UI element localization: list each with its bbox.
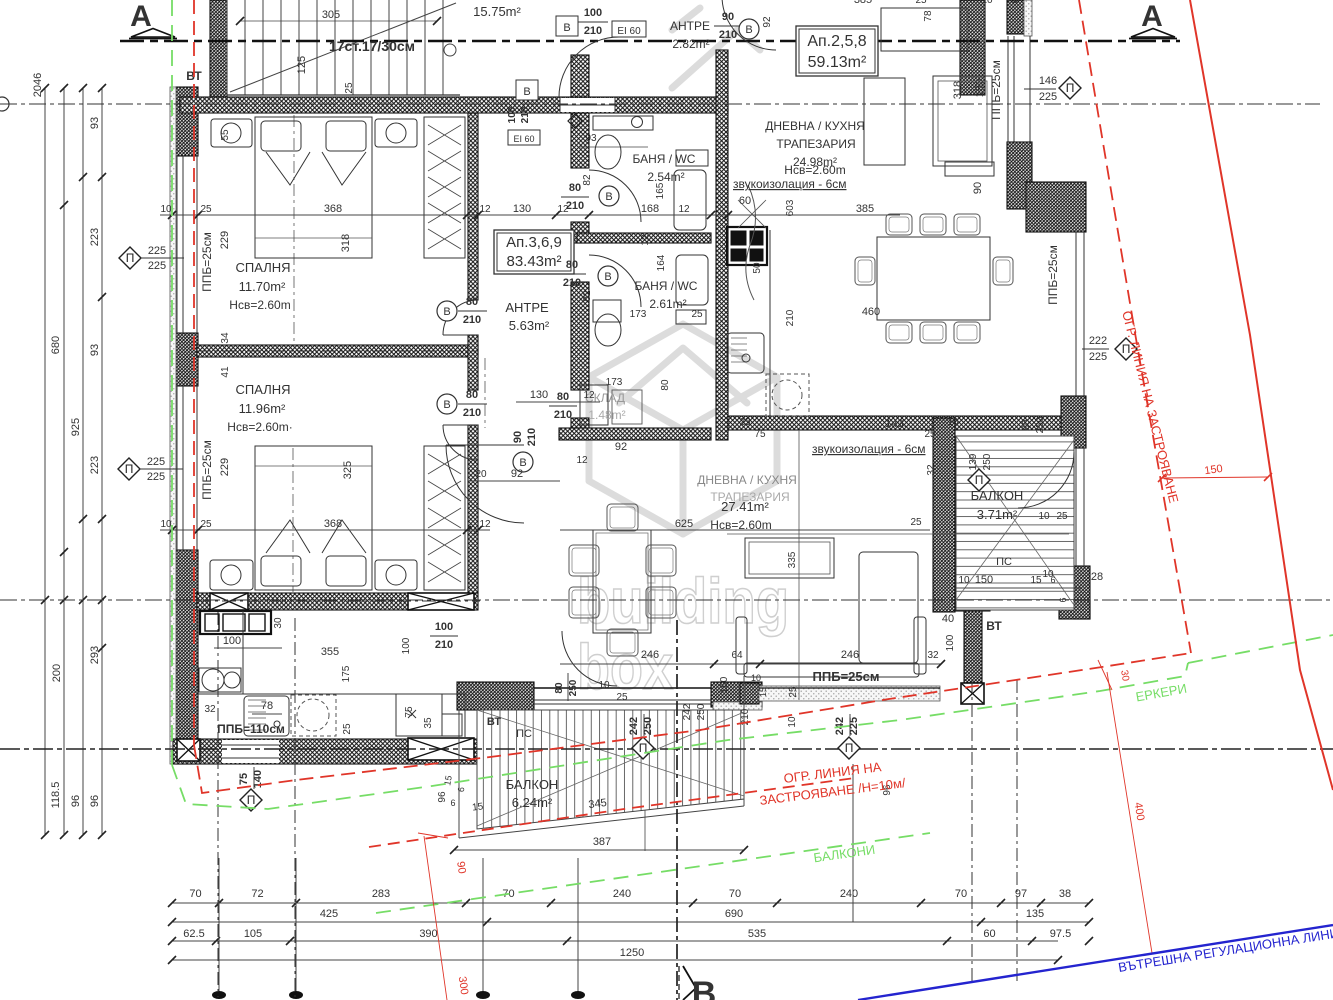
- svg-text:80: 80: [660, 379, 671, 391]
- svg-text:146: 146: [1039, 75, 1057, 87]
- svg-text:80: 80: [557, 391, 569, 403]
- svg-text:70: 70: [729, 888, 741, 900]
- svg-text:100: 100: [435, 621, 453, 633]
- svg-text:В: В: [692, 975, 717, 1000]
- svg-text:210: 210: [584, 25, 602, 37]
- svg-text:25: 25: [200, 204, 212, 215]
- svg-text:ППБ=25см: ППБ=25см: [1046, 245, 1060, 305]
- svg-text:10: 10: [1038, 511, 1050, 522]
- svg-text:210: 210: [719, 29, 737, 41]
- svg-text:130: 130: [513, 203, 531, 215]
- svg-text:100: 100: [401, 637, 412, 654]
- svg-text:12: 12: [479, 204, 491, 215]
- svg-text:10: 10: [958, 575, 970, 586]
- svg-text:В: В: [443, 399, 450, 411]
- svg-text:ТРАПЕЗАРИЯ: ТРАПЕЗАРИЯ: [776, 137, 855, 151]
- svg-text:П: П: [975, 473, 984, 487]
- svg-text:звукоизолация - 6см: звукоизолация - 6см: [733, 177, 847, 191]
- svg-text:СПАЛНЯ: СПАЛНЯ: [236, 382, 291, 397]
- svg-text:242: 242: [682, 703, 693, 720]
- svg-text:240: 240: [613, 888, 631, 900]
- svg-text:25: 25: [739, 417, 751, 428]
- svg-text:12: 12: [576, 455, 588, 466]
- svg-text:925: 925: [70, 418, 82, 436]
- svg-text:1250: 1250: [620, 947, 644, 959]
- svg-text:ДНЕВНА / КУХНЯ: ДНЕВНА / КУХНЯ: [697, 473, 797, 487]
- svg-text:96: 96: [437, 791, 448, 803]
- svg-text:В: В: [745, 24, 752, 36]
- svg-text:335: 335: [787, 551, 798, 568]
- svg-text:305: 305: [322, 9, 340, 21]
- svg-text:25: 25: [924, 429, 936, 440]
- svg-text:25: 25: [344, 82, 355, 94]
- svg-text:25: 25: [200, 519, 212, 530]
- svg-text:СПАЛНЯ: СПАЛНЯ: [236, 260, 291, 275]
- svg-text:25: 25: [788, 686, 799, 698]
- svg-text:143.: 143.: [885, 418, 906, 430]
- svg-text:17ст.17/30см: 17ст.17/30см: [329, 38, 415, 54]
- svg-text:83.43m²: 83.43m²: [506, 253, 561, 270]
- svg-text:100: 100: [223, 635, 241, 647]
- svg-text:АНТРЕ: АНТРЕ: [670, 19, 710, 33]
- svg-text:150: 150: [1204, 463, 1224, 477]
- svg-text:229: 229: [219, 458, 231, 476]
- svg-text:210: 210: [554, 409, 572, 421]
- svg-text:ПС: ПС: [516, 728, 532, 740]
- svg-text:П: П: [125, 462, 134, 476]
- svg-text:ПС: ПС: [996, 556, 1012, 568]
- svg-text:15: 15: [758, 687, 768, 697]
- svg-text:150: 150: [719, 676, 730, 693]
- svg-text:325: 325: [342, 461, 354, 479]
- svg-text:318: 318: [952, 81, 964, 99]
- svg-text:78: 78: [261, 700, 273, 712]
- svg-text:40: 40: [942, 613, 954, 625]
- svg-text:10: 10: [947, 417, 959, 428]
- svg-text:60: 60: [739, 195, 751, 207]
- svg-text:12: 12: [678, 204, 690, 215]
- svg-text:135: 135: [1026, 908, 1044, 920]
- svg-text:125: 125: [296, 56, 308, 74]
- svg-text:звукоизолация - 6см: звукоизолация - 6см: [812, 442, 926, 456]
- svg-text:96: 96: [70, 795, 82, 807]
- svg-text:100: 100: [507, 106, 518, 123]
- svg-text:27.41m²: 27.41m²: [721, 499, 769, 514]
- svg-text:222: 222: [1089, 335, 1107, 347]
- svg-text:В: В: [563, 22, 570, 34]
- svg-text:12: 12: [640, 234, 651, 246]
- svg-text:25: 25: [910, 517, 922, 528]
- svg-text:12: 12: [479, 519, 491, 530]
- svg-text:78: 78: [923, 10, 934, 22]
- svg-text:240: 240: [840, 888, 858, 900]
- svg-text:293: 293: [89, 646, 101, 664]
- svg-text:93: 93: [89, 344, 101, 356]
- svg-text:173: 173: [630, 309, 647, 320]
- svg-text:242: 242: [628, 717, 640, 735]
- svg-text:210: 210: [463, 407, 481, 419]
- svg-text:В: В: [605, 191, 612, 203]
- svg-text:30: 30: [1118, 669, 1131, 682]
- svg-text:300: 300: [456, 976, 470, 996]
- svg-text:625: 625: [675, 518, 693, 530]
- svg-text:92: 92: [762, 16, 773, 28]
- svg-text:387: 387: [593, 836, 611, 848]
- svg-text:28: 28: [1091, 571, 1103, 583]
- svg-text:ППБ=25см: ППБ=25см: [989, 60, 1003, 120]
- svg-text:10: 10: [598, 680, 610, 691]
- svg-text:75: 75: [1006, 0, 1018, 6]
- svg-text:6.24m²: 6.24m²: [512, 795, 553, 810]
- svg-text:А: А: [1141, 0, 1163, 33]
- svg-text:75: 75: [754, 429, 766, 440]
- svg-text:246: 246: [641, 649, 659, 661]
- svg-text:105: 105: [244, 928, 262, 940]
- svg-text:385: 385: [856, 203, 874, 215]
- svg-text:П: П: [845, 741, 854, 755]
- svg-text:210: 210: [566, 200, 584, 212]
- svg-text:15: 15: [472, 801, 485, 813]
- svg-text:30: 30: [273, 617, 284, 629]
- svg-text:5.63m²: 5.63m²: [509, 318, 550, 333]
- svg-text:10: 10: [787, 716, 798, 728]
- svg-text:20: 20: [475, 469, 487, 480]
- svg-text:Нсв=2.60m: Нсв=2.60m: [229, 298, 290, 312]
- svg-text:368: 368: [324, 203, 342, 215]
- svg-text:225: 225: [148, 260, 166, 272]
- svg-text:225: 225: [148, 245, 166, 257]
- svg-text:В: В: [604, 271, 611, 283]
- svg-text:БАЛКОН: БАЛКОН: [506, 777, 559, 792]
- svg-text:93: 93: [89, 117, 101, 129]
- svg-text:2.82m²: 2.82m²: [672, 37, 709, 51]
- svg-text:229: 229: [219, 231, 231, 249]
- svg-text:41: 41: [220, 366, 231, 378]
- svg-text:210: 210: [435, 639, 453, 651]
- svg-text:150: 150: [975, 574, 993, 586]
- svg-text:38: 38: [1059, 888, 1071, 900]
- svg-text:EI 60: EI 60: [513, 134, 534, 144]
- svg-text:Ап.2,5,8: Ап.2,5,8: [807, 33, 866, 50]
- svg-text:В: В: [443, 306, 450, 318]
- svg-text:34: 34: [220, 332, 231, 344]
- svg-text:ВТ: ВТ: [986, 619, 1002, 633]
- svg-text:25: 25: [1056, 511, 1068, 522]
- svg-text:680: 680: [50, 336, 62, 354]
- svg-text:355: 355: [321, 646, 339, 658]
- svg-text:80: 80: [466, 296, 478, 308]
- svg-text:283: 283: [372, 888, 390, 900]
- svg-text:210: 210: [563, 277, 581, 289]
- svg-text:603: 603: [785, 199, 796, 216]
- svg-text:EI 60: EI 60: [617, 26, 641, 37]
- svg-text:10: 10: [160, 204, 172, 215]
- svg-text:150: 150: [974, 79, 986, 97]
- svg-text:10: 10: [981, 0, 993, 6]
- svg-text:82: 82: [582, 174, 593, 186]
- svg-text:15.75m²: 15.75m²: [473, 4, 521, 19]
- svg-text:70: 70: [955, 888, 967, 900]
- svg-text:Нсв=2.60m: Нсв=2.60m: [784, 163, 845, 177]
- svg-text:64: 64: [731, 650, 743, 661]
- svg-text:130: 130: [530, 389, 548, 401]
- svg-text:10: 10: [1042, 569, 1054, 580]
- svg-text:250: 250: [696, 703, 707, 720]
- svg-text:75: 75: [238, 773, 250, 785]
- svg-text:АНТРЕ: АНТРЕ: [505, 300, 549, 315]
- svg-text:210: 210: [526, 428, 538, 446]
- svg-text:690: 690: [725, 908, 743, 920]
- svg-text:93: 93: [585, 133, 597, 144]
- svg-text:96: 96: [89, 795, 101, 807]
- svg-text:2046: 2046: [32, 73, 44, 97]
- svg-text:11.96m²: 11.96m²: [239, 401, 286, 416]
- svg-text:210: 210: [785, 309, 796, 326]
- svg-text:БАНЯ / WC: БАНЯ / WC: [633, 152, 696, 166]
- svg-text:90: 90: [454, 861, 468, 875]
- svg-text:БАНЯ / WC: БАНЯ / WC: [635, 279, 698, 293]
- svg-text:55: 55: [220, 129, 231, 141]
- svg-text:10: 10: [160, 519, 172, 530]
- svg-text:32: 32: [927, 650, 939, 661]
- svg-text:6: 6: [450, 798, 455, 808]
- svg-text:11.70m²: 11.70m²: [239, 279, 286, 294]
- svg-text:80: 80: [569, 182, 581, 194]
- svg-text:90: 90: [722, 11, 734, 23]
- svg-text:225: 225: [1089, 351, 1107, 363]
- svg-text:60: 60: [983, 928, 995, 940]
- svg-text:164: 164: [656, 254, 667, 271]
- svg-text:90: 90: [972, 182, 984, 194]
- svg-text:70: 70: [189, 888, 201, 900]
- svg-text:200: 200: [51, 664, 63, 682]
- svg-text:173: 173: [606, 377, 623, 388]
- svg-text:425: 425: [320, 908, 338, 920]
- svg-text:90: 90: [512, 431, 524, 443]
- svg-text:1.48m²: 1.48m²: [588, 408, 625, 422]
- svg-text:25: 25: [342, 723, 353, 735]
- svg-text:225: 225: [147, 456, 165, 468]
- svg-text:ВТ: ВТ: [487, 716, 502, 728]
- svg-text:3.71m²: 3.71m²: [977, 507, 1018, 522]
- svg-text:25: 25: [691, 309, 703, 320]
- svg-text:385: 385: [854, 0, 872, 6]
- svg-text:175: 175: [341, 665, 352, 682]
- svg-text:12: 12: [583, 390, 595, 401]
- svg-text:223: 223: [89, 228, 101, 246]
- svg-text:59.13m²: 59.13m²: [808, 54, 867, 71]
- svg-text:П: П: [247, 793, 256, 807]
- svg-text:6: 6: [1058, 597, 1068, 602]
- svg-text:210: 210: [463, 314, 481, 326]
- svg-text:97.5: 97.5: [1050, 928, 1071, 940]
- svg-text:П: П: [1066, 81, 1075, 95]
- svg-text:82: 82: [582, 290, 593, 302]
- svg-text:2.61m²: 2.61m²: [649, 297, 686, 311]
- svg-text:ППБ=110см: ППБ=110см: [217, 722, 285, 736]
- svg-text:168: 168: [641, 203, 659, 215]
- svg-text:П: П: [126, 251, 135, 265]
- svg-text:318: 318: [340, 234, 352, 252]
- svg-text:80: 80: [566, 259, 578, 271]
- svg-text:460: 460: [862, 306, 880, 318]
- svg-text:75: 75: [404, 706, 415, 718]
- svg-text:ППБ=25см: ППБ=25см: [813, 669, 880, 684]
- svg-text:Ап.3,6,9: Ап.3,6,9: [506, 234, 562, 251]
- svg-text:118.5: 118.5: [50, 782, 62, 809]
- svg-text:50: 50: [752, 262, 763, 274]
- svg-text:535: 535: [748, 928, 766, 940]
- svg-text:368: 368: [324, 518, 342, 530]
- svg-text:Нсв=2.60m·: Нсв=2.60m·: [227, 420, 292, 434]
- svg-text:92: 92: [615, 441, 627, 453]
- svg-text:2.54m²: 2.54m²: [647, 170, 684, 184]
- svg-text:210: 210: [520, 106, 531, 123]
- svg-text:62.5: 62.5: [183, 928, 204, 940]
- svg-text:72: 72: [251, 888, 263, 900]
- svg-text:80: 80: [466, 389, 478, 401]
- svg-text:92: 92: [511, 468, 523, 480]
- svg-text:100: 100: [584, 7, 602, 19]
- svg-text:ППБ=25см: ППБ=25см: [200, 232, 214, 292]
- svg-text:25: 25: [915, 0, 927, 6]
- svg-text:80: 80: [554, 682, 565, 694]
- svg-text:А: А: [130, 0, 152, 33]
- svg-text:25: 25: [616, 692, 628, 703]
- svg-text:250: 250: [982, 453, 993, 470]
- svg-text:223: 223: [89, 456, 101, 474]
- svg-text:80: 80: [1021, 419, 1032, 431]
- svg-text:165: 165: [655, 182, 666, 199]
- svg-text:345: 345: [588, 797, 608, 811]
- svg-text:100: 100: [945, 634, 956, 651]
- svg-text:225: 225: [147, 471, 165, 483]
- svg-text:390: 390: [419, 928, 437, 940]
- svg-text:10: 10: [751, 673, 761, 683]
- svg-text:246: 246: [841, 649, 859, 661]
- svg-text:15: 15: [1030, 575, 1042, 586]
- svg-text:35: 35: [423, 717, 434, 729]
- svg-text:250: 250: [568, 679, 579, 696]
- svg-text:250: 250: [1035, 416, 1046, 433]
- svg-text:building: building: [577, 565, 789, 637]
- svg-text:139: 139: [968, 453, 979, 470]
- svg-text:32: 32: [926, 464, 937, 476]
- svg-text:В: В: [523, 86, 530, 98]
- svg-text:ДНЕВНА / КУХНЯ: ДНЕВНА / КУХНЯ: [765, 119, 865, 133]
- svg-text:ППБ=25см: ППБ=25см: [200, 440, 214, 500]
- svg-text:32: 32: [204, 704, 216, 715]
- svg-text:225: 225: [1039, 91, 1057, 103]
